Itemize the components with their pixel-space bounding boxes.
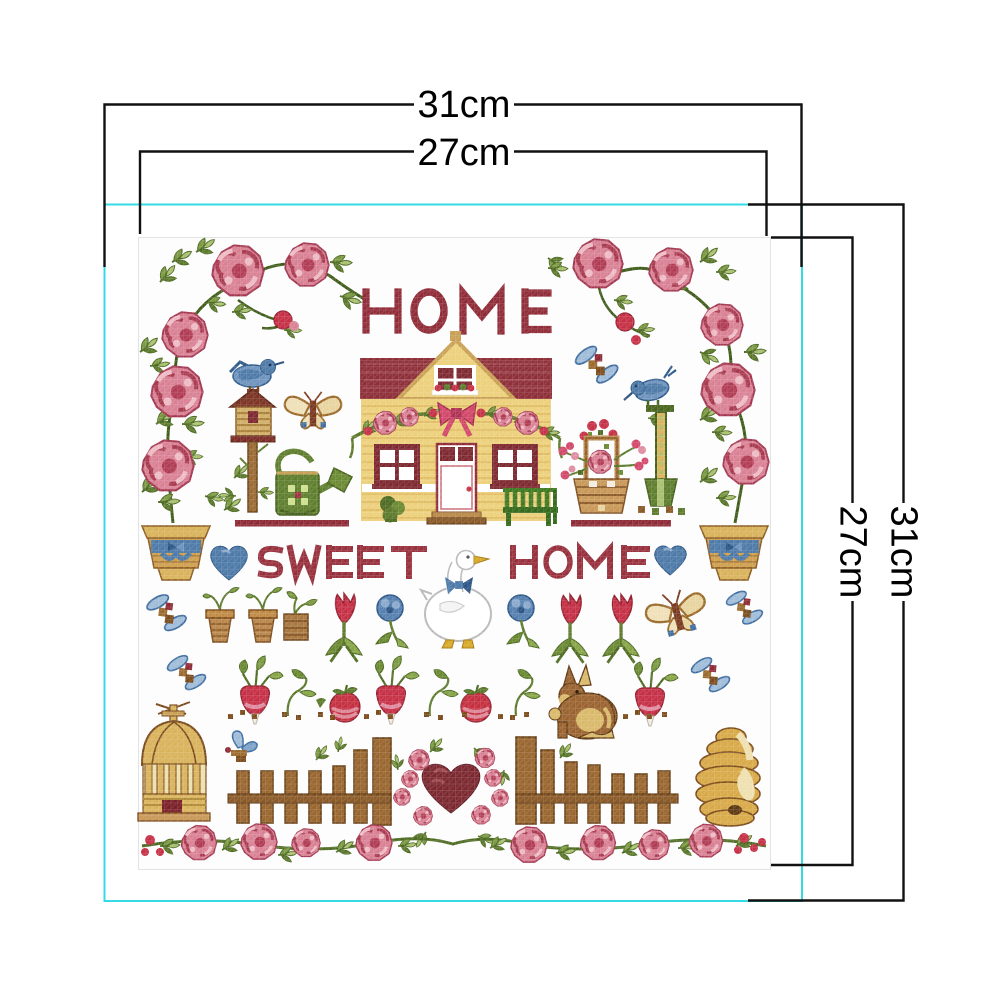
- svg-text:27cm: 27cm: [832, 506, 874, 599]
- svg-text:31cm: 31cm: [883, 506, 925, 599]
- svg-text:27cm: 27cm: [418, 132, 511, 174]
- svg-text:31cm: 31cm: [418, 84, 511, 126]
